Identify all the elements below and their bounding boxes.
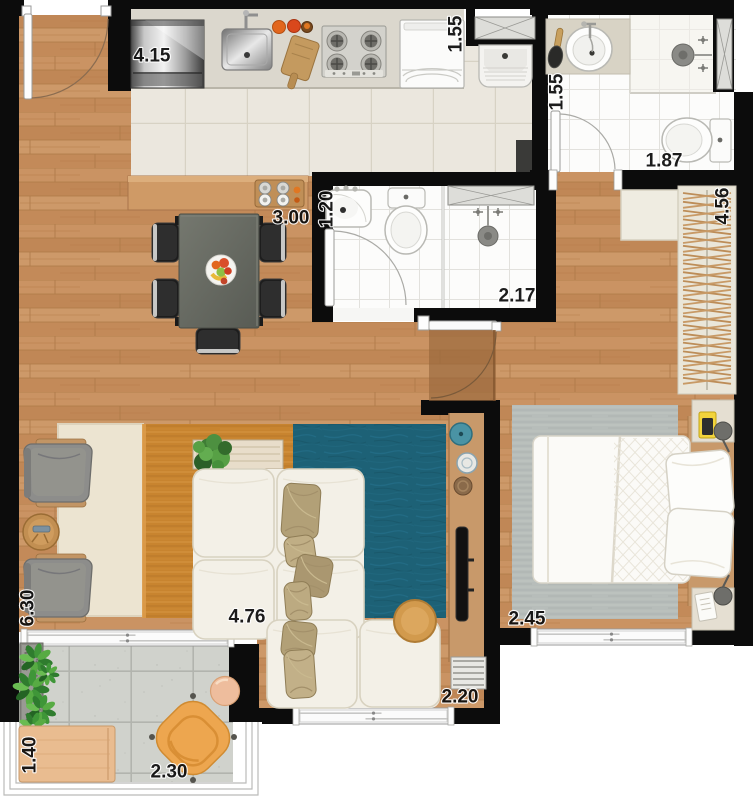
svg-text:1.40: 1.40 (20, 737, 41, 774)
svg-text:1.20: 1.20 (317, 191, 338, 228)
svg-text:2.30: 2.30 (151, 762, 188, 783)
svg-text:4.56: 4.56 (713, 188, 734, 225)
svg-text:2.45: 2.45 (509, 609, 546, 630)
svg-text:1.55: 1.55 (446, 15, 467, 52)
svg-text:6.30: 6.30 (18, 590, 39, 627)
svg-text:1.55: 1.55 (547, 73, 568, 110)
svg-text:4.76: 4.76 (229, 607, 266, 628)
svg-text:4.15: 4.15 (134, 46, 171, 67)
svg-text:1.87: 1.87 (646, 151, 683, 172)
svg-text:2.17: 2.17 (499, 286, 536, 307)
svg-text:3.00: 3.00 (273, 208, 310, 229)
svg-text:2.20: 2.20 (442, 687, 479, 708)
